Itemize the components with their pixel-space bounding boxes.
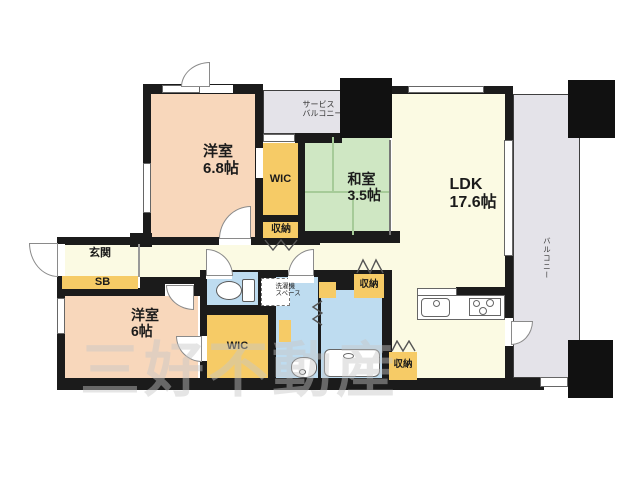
wall-corner-genkan (130, 233, 152, 247)
door-gap-wic-upper (256, 148, 263, 178)
wall-under-sb (57, 288, 145, 296)
ldk-name: LDK (450, 176, 483, 194)
washitsu-size: 3.5帖 (348, 188, 381, 204)
ldk-label: LDK 17.6帖 (397, 176, 502, 194)
toilet-tank-icon (242, 279, 255, 302)
service-balcony-line2: バルコニー (303, 110, 343, 119)
bedroom1-name: 洋室 (203, 144, 233, 161)
laundry-line2: スペース (276, 290, 301, 297)
pillar-bottom-right (568, 340, 613, 398)
genkan-label: 玄関 (65, 247, 135, 259)
door-arc-entry (29, 243, 58, 277)
kitchen-pass-counter (417, 288, 457, 296)
bedroom1-size: 6.8帖 (203, 161, 239, 178)
burner1-icon (473, 300, 480, 307)
laundry-label: 洗濯機 スペース (261, 283, 290, 290)
window-wic-upper-top (263, 134, 295, 142)
folding-door-closet-upper-icon (264, 239, 298, 251)
pillar-top-right (568, 80, 615, 138)
ldk-size: 17.6帖 (450, 194, 497, 212)
ldk-floor (392, 94, 505, 380)
washitsu-label: 和室 3.5帖 (305, 172, 390, 188)
closet-upper-label: 収納 (261, 224, 301, 235)
wall-washitsu-bottom (295, 231, 400, 243)
bedroom1-label: 洋室 6.8帖 (151, 144, 255, 161)
faucet-icon (433, 300, 440, 307)
folding-door-closet-hall-icon (356, 258, 384, 274)
floor-plan: 洋室 6.8帖 WIC 収納 サービス バルコニー 和室 3.5帖 LDK 17… (0, 0, 640, 480)
toilet-icon (216, 281, 242, 300)
balcony-label: バルコニー (542, 218, 550, 298)
burner3-icon (479, 307, 487, 315)
door-arc-bedroom1-top (181, 62, 210, 87)
watermark-logo: 三好不動産 (80, 322, 400, 409)
window-balcony-sill (540, 377, 568, 387)
window-bedroom1-left (143, 163, 151, 213)
genkan-step-line (138, 244, 140, 277)
window-ldk-balcony (504, 140, 513, 256)
shoebox-label: SB (75, 276, 130, 288)
bath-counter-box (319, 282, 336, 298)
closet-hall-label: 収納 (354, 280, 384, 291)
service-balcony-label: サービス バルコニー (263, 101, 342, 110)
door-gap-bedroom1-bottom (219, 238, 251, 245)
washitsu-name: 和室 (348, 172, 376, 188)
wall-service-balcony-bottom (295, 133, 342, 143)
entry-door-gap (57, 244, 65, 276)
wall-wic-upper-divider (260, 215, 300, 222)
burner2-icon (486, 299, 494, 307)
pillar-top-center (340, 78, 392, 138)
window-ldk-top (408, 86, 484, 93)
wic-upper-label: WIC (263, 173, 298, 185)
